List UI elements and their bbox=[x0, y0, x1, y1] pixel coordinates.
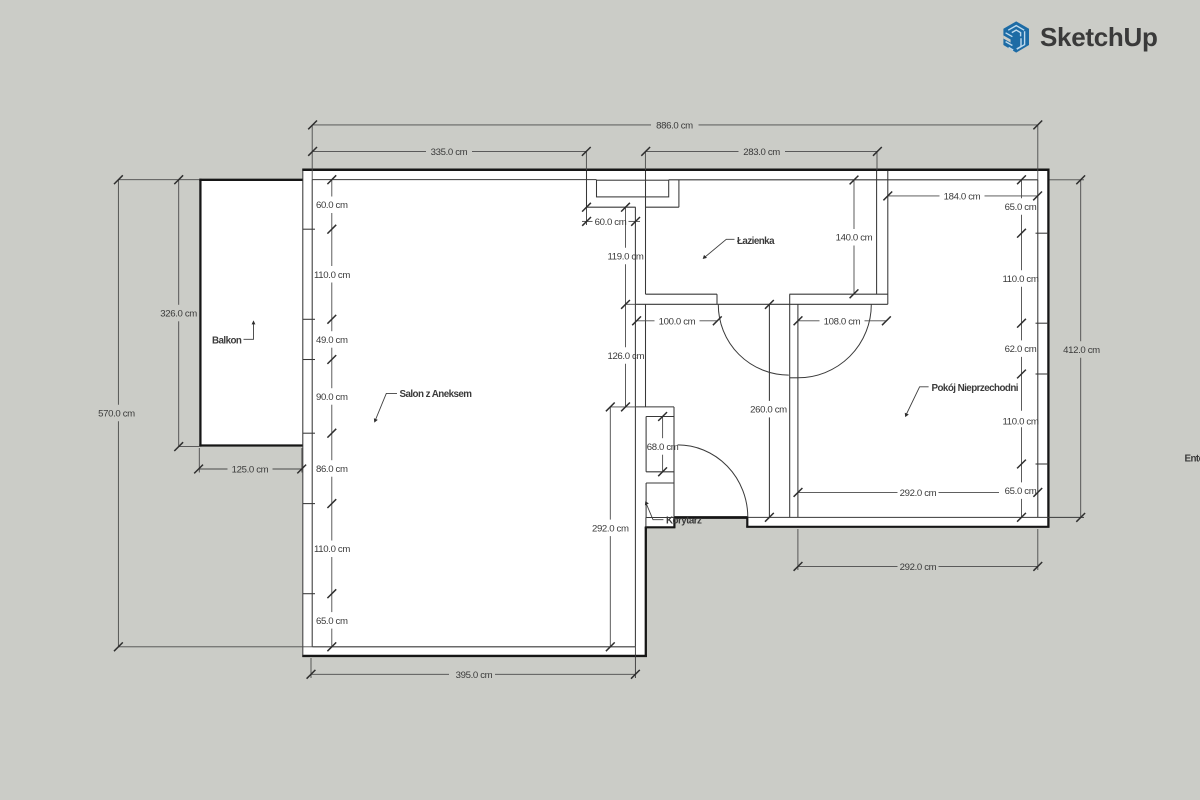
svg-text:292.0 cm: 292.0 cm bbox=[900, 562, 937, 573]
svg-text:335.0 cm: 335.0 cm bbox=[431, 147, 468, 158]
svg-text:283.0 cm: 283.0 cm bbox=[743, 147, 780, 158]
svg-text:326.0 cm: 326.0 cm bbox=[160, 309, 197, 320]
svg-text:Łazienka: Łazienka bbox=[737, 236, 775, 247]
svg-text:62.0 cm: 62.0 cm bbox=[1005, 344, 1037, 355]
svg-text:Korytarz: Korytarz bbox=[666, 516, 702, 527]
svg-text:65.0 cm: 65.0 cm bbox=[1005, 202, 1037, 213]
svg-text:60.0 cm: 60.0 cm bbox=[595, 217, 627, 228]
svg-text:Enter: Enter bbox=[1185, 454, 1200, 465]
svg-text:49.0 cm: 49.0 cm bbox=[316, 335, 348, 346]
svg-text:108.0 cm: 108.0 cm bbox=[824, 316, 861, 327]
svg-text:110.0 cm: 110.0 cm bbox=[314, 270, 350, 281]
svg-text:126.0 cm: 126.0 cm bbox=[607, 351, 644, 362]
svg-text:260.0 cm: 260.0 cm bbox=[750, 405, 787, 416]
svg-text:60.0 cm: 60.0 cm bbox=[316, 200, 348, 211]
svg-text:570.0 cm: 570.0 cm bbox=[98, 409, 135, 420]
svg-text:140.0 cm: 140.0 cm bbox=[836, 233, 873, 244]
svg-text:292.0 cm: 292.0 cm bbox=[592, 523, 629, 534]
svg-text:SketchUp: SketchUp bbox=[1040, 22, 1158, 52]
svg-text:184.0 cm: 184.0 cm bbox=[944, 191, 981, 202]
svg-text:86.0 cm: 86.0 cm bbox=[316, 464, 348, 475]
svg-text:68.0 cm: 68.0 cm bbox=[647, 442, 679, 453]
svg-text:110.0 cm: 110.0 cm bbox=[1003, 274, 1039, 285]
svg-text:292.0 cm: 292.0 cm bbox=[900, 488, 937, 499]
svg-text:Pokój Nieprzechodni: Pokój Nieprzechodni bbox=[932, 383, 1019, 394]
svg-text:Salon z Aneksem: Salon z Aneksem bbox=[400, 389, 473, 400]
svg-text:412.0 cm: 412.0 cm bbox=[1063, 345, 1100, 356]
svg-text:125.0 cm: 125.0 cm bbox=[232, 465, 269, 476]
svg-text:110.0 cm: 110.0 cm bbox=[314, 544, 350, 555]
svg-text:90.0 cm: 90.0 cm bbox=[316, 392, 348, 403]
svg-text:100.0 cm: 100.0 cm bbox=[659, 316, 696, 327]
svg-text:119.0 cm: 119.0 cm bbox=[608, 251, 644, 262]
svg-text:395.0 cm: 395.0 cm bbox=[456, 670, 493, 681]
svg-text:Balkon: Balkon bbox=[212, 335, 242, 346]
svg-text:110.0 cm: 110.0 cm bbox=[1003, 417, 1039, 428]
svg-text:65.0 cm: 65.0 cm bbox=[316, 616, 348, 627]
svg-text:65.0 cm: 65.0 cm bbox=[1005, 486, 1037, 497]
svg-text:886.0 cm: 886.0 cm bbox=[656, 120, 693, 131]
